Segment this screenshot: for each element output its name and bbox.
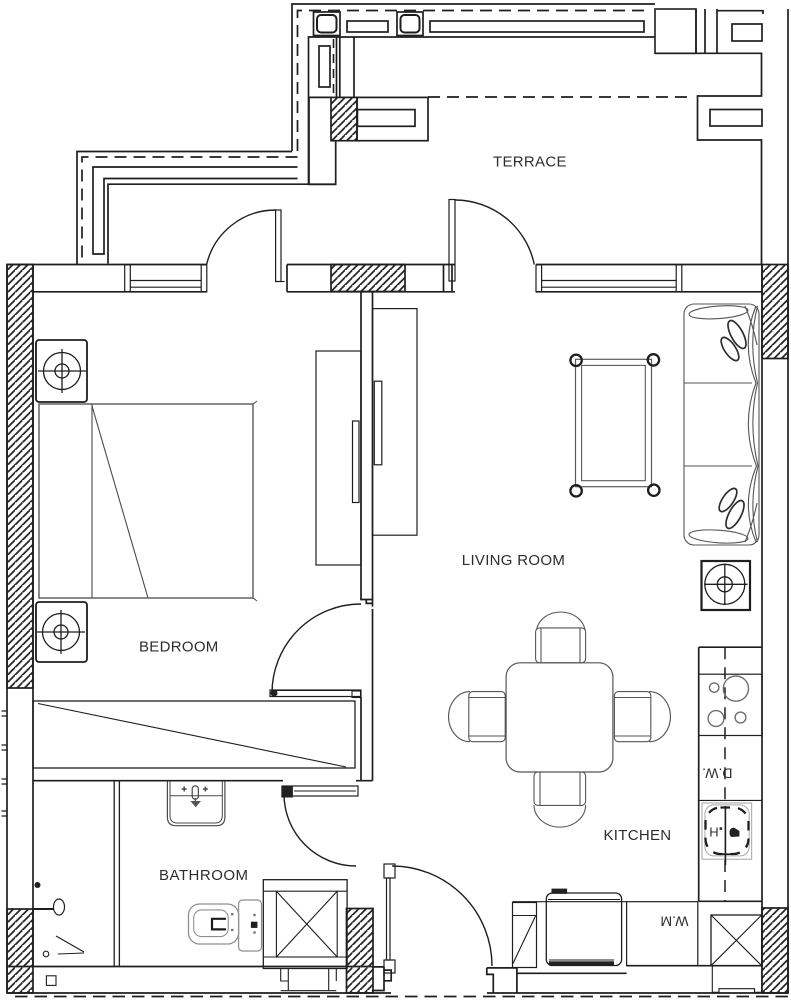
svg-text:D.W.: D.W.	[702, 766, 732, 782]
svg-text:W.M: W.M	[661, 914, 689, 930]
svg-text:BATHROOM: BATHROOM	[159, 867, 249, 884]
svg-text:BEDROOM: BEDROOM	[139, 639, 219, 656]
svg-text:LIVING ROOM: LIVING ROOM	[462, 552, 565, 569]
svg-text:KITCHEN: KITCHEN	[604, 827, 672, 844]
svg-text:H: H	[709, 824, 718, 839]
svg-text:TERRACE: TERRACE	[493, 154, 567, 171]
